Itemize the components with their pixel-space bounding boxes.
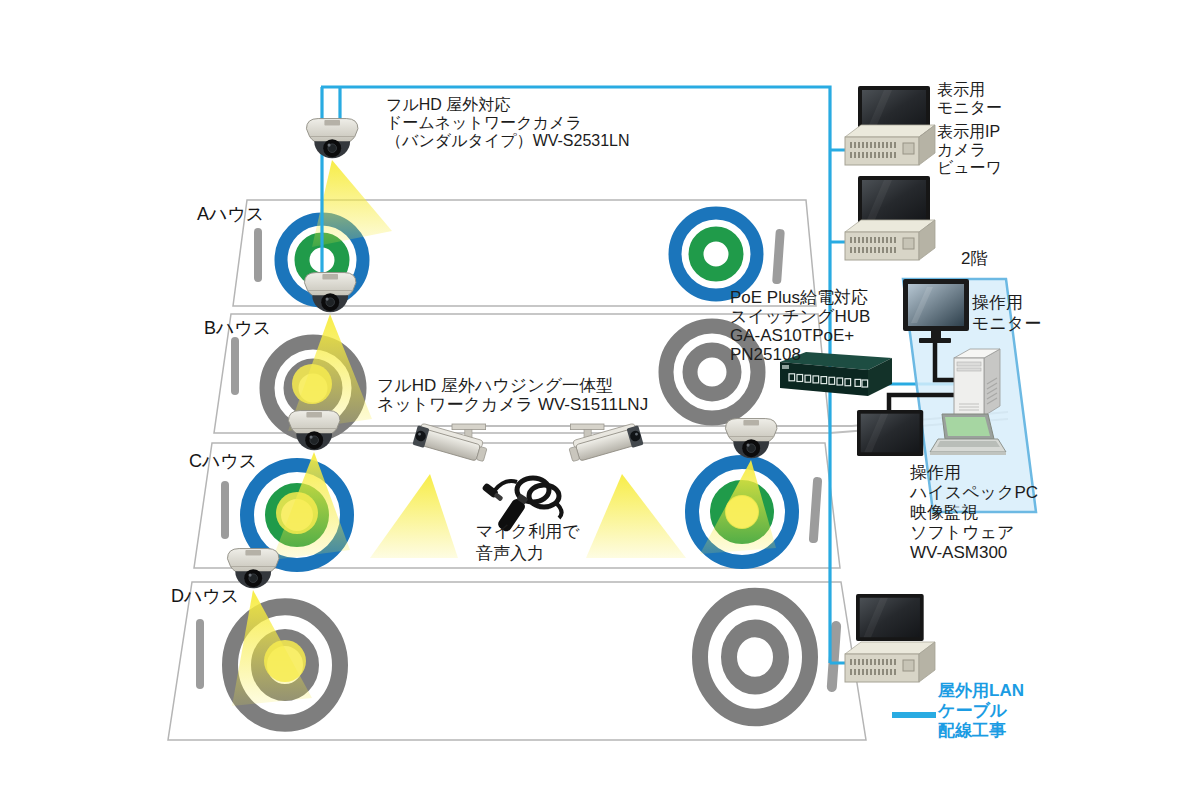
- dome-camera-label-line3: （バンダルタイプ）WV-S2531LN: [386, 132, 630, 150]
- operation-pc-label-line4: ソフトウェア: [910, 523, 1038, 543]
- house-d-label: Dハウス: [171, 584, 239, 608]
- microphone-label-line2: 音声入力: [476, 543, 580, 565]
- monitor-icon: [856, 594, 924, 641]
- pc-tower-icon: [954, 349, 1000, 416]
- diagram-canvas: Aハウス Bハウス Cハウス Dハウス フルHD 屋外対応 ドームネットワークカ…: [0, 0, 1200, 800]
- operation-monitor-label-line2: モニター: [972, 313, 1041, 334]
- display-viewer-label-line2: カメラ: [937, 141, 1002, 159]
- poe-hub-label: PoE Plus給電対応 スイッチングHUB GA-AS10TPoE+ PN25…: [730, 288, 870, 364]
- display-viewer-label-line1: 表示用IP: [937, 123, 1002, 141]
- floor-label: 2階: [961, 247, 987, 270]
- poe-hub-label-line2: スイッチングHUB: [730, 307, 870, 326]
- operation-pc-label-line3: 映像監視: [910, 503, 1038, 523]
- dome-camera-label-line1: フルHD 屋外対応: [386, 96, 630, 114]
- poe-hub-label-line3: GA-AS10TPoE+: [730, 326, 870, 345]
- display-monitor-label-line1: 表示用: [937, 81, 1002, 99]
- poe-hub-label-line4: PN25108: [730, 345, 870, 364]
- display-viewer-label-line3: ビューワ: [937, 159, 1002, 177]
- operation-pc-label-line1: 操作用: [910, 463, 1038, 483]
- display-monitor-label: 表示用 モニター: [937, 81, 1002, 117]
- display-monitor-label-line2: モニター: [937, 99, 1002, 117]
- house-b-label: Bハウス: [204, 316, 271, 340]
- housing-camera-label-line2: ネットワークカメラ WV-S1511LNJ: [377, 395, 648, 414]
- housing-camera-label-line1: フルHD 屋外ハウジング一体型: [377, 376, 648, 395]
- house-c-label: Cハウス: [189, 449, 257, 473]
- ip-viewer-box-icon: [845, 125, 935, 165]
- legend-label-line2: ケーブル: [938, 701, 1024, 721]
- operation-pc-label-line5: WV-ASM300: [910, 543, 1038, 563]
- legend-lan-line-swatch: [892, 712, 936, 718]
- dome-camera-icon: [306, 119, 357, 159]
- housing-camera-label: フルHD 屋外ハウジング一体型 ネットワークカメラ WV-S1511LNJ: [377, 376, 648, 414]
- ip-viewer-box-icon: [845, 642, 935, 682]
- legend-label-line1: 屋外用LAN: [938, 681, 1024, 701]
- operation-pc-label: 操作用 ハイスペックPC 映像監視 ソフトウェア WV-ASM300: [910, 463, 1038, 563]
- monitor-icon: [858, 176, 930, 226]
- dome-camera-label-line2: ドームネットワークカメラ: [386, 114, 630, 132]
- operation-monitor-label-line1: 操作用: [972, 292, 1041, 313]
- ip-viewer-box-icon: [845, 220, 935, 260]
- microphone-label-line1: マイク利用で: [476, 521, 580, 543]
- poe-hub-label-line1: PoE Plus給電対応: [730, 288, 870, 307]
- dome-camera-label: フルHD 屋外対応 ドームネットワークカメラ （バンダルタイプ）WV-S2531…: [386, 96, 630, 150]
- legend-label-line3: 配線工事: [938, 721, 1024, 741]
- legend-label: 屋外用LAN ケーブル 配線工事: [938, 681, 1024, 741]
- operation-pc-label-line2: ハイスペックPC: [910, 483, 1038, 503]
- house-a-label: Aハウス: [197, 202, 264, 226]
- microphone-label: マイク利用で 音声入力: [476, 521, 580, 565]
- monitor-icon: [857, 410, 923, 456]
- display-viewer-label: 表示用IP カメラ ビューワ: [937, 123, 1002, 177]
- operation-monitor-label: 操作用 モニター: [972, 292, 1041, 334]
